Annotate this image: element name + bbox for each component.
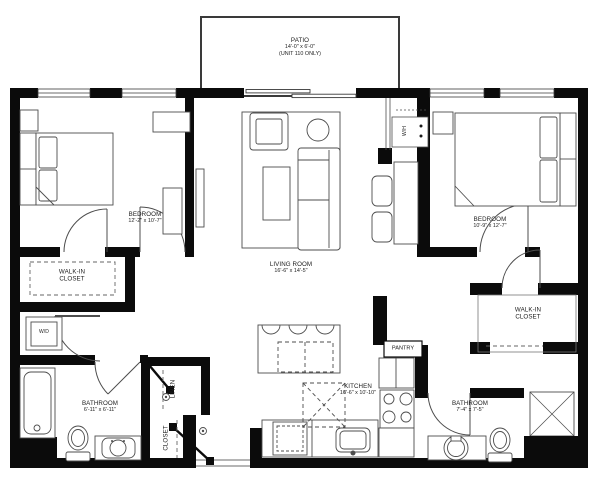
water-heater-unit <box>392 117 428 147</box>
living-room-furniture <box>196 112 340 250</box>
kitchen-island <box>258 325 340 373</box>
bedroom-left-label: BEDROOM 12'-2" x 10'-7" <box>128 211 161 225</box>
kitchen-counter <box>379 428 414 457</box>
pillow <box>540 117 557 158</box>
right-bedroom-furniture <box>433 112 576 206</box>
pillow <box>540 160 557 202</box>
bathtub <box>20 368 55 438</box>
walk-in-closet-right-label: WALK-IN CLOSET <box>505 307 551 322</box>
room-dims: 6'-11" x 6'-11" <box>82 407 118 413</box>
nightstand <box>20 110 38 131</box>
faucet <box>351 451 356 456</box>
dresser <box>153 112 190 132</box>
dining-chair <box>372 212 392 242</box>
closet-label: CLOSET <box>162 425 169 450</box>
patio-label: PATIO 14'-0" x 6'-0" (UNIT 110 ONLY) <box>279 37 321 57</box>
living-room-label: LIVING ROOM 16'-6" x 14'-5" <box>270 261 312 275</box>
kitchen-label: KITCHEN 16'-6" x 10'-10" <box>340 383 376 397</box>
water-heater-label: W/H <box>403 126 409 136</box>
room-name: W/H <box>403 126 409 136</box>
room-note: (UNIT 110 ONLY) <box>279 51 321 57</box>
room-name: PANTRY <box>392 346 414 353</box>
dresser <box>163 188 182 234</box>
room-dims: 16'-6" x 14'-5" <box>270 268 312 274</box>
room-name: BEDROOM <box>473 216 506 223</box>
headboard <box>560 113 576 206</box>
nightstand <box>433 112 453 134</box>
room-name: BEDROOM <box>128 211 161 218</box>
fridge <box>379 358 414 388</box>
room-name: CLOSET <box>162 425 169 450</box>
walk-in-closet-left-label: WALK-IN CLOSET <box>49 269 95 284</box>
washer-dryer-label: W/D <box>39 330 49 336</box>
room-dims: 10'-9" x 12'-7" <box>473 223 506 229</box>
floor-plan-drawing <box>0 0 600 490</box>
room-name: WALK-IN CLOSET <box>505 307 551 322</box>
room-dims: 12'-2" x 10'-7" <box>128 218 161 224</box>
bathroom-right-label: BATHROOM 7'-4" x 7'-5" <box>452 400 488 414</box>
room-name: W/D <box>39 330 49 336</box>
round-table <box>307 119 329 141</box>
right-bathroom-fixtures <box>428 392 578 462</box>
room-name: BATHROOM <box>452 400 488 407</box>
pillow <box>39 170 57 201</box>
room-name: LIVING ROOM <box>270 261 312 268</box>
room-name: WALK-IN CLOSET <box>49 269 95 284</box>
kitchen-sink <box>336 428 370 452</box>
pantry-label: PANTRY <box>392 346 414 353</box>
dining-table <box>394 162 418 244</box>
room-dims: 14'-0" x 6'-0" <box>279 44 321 50</box>
dining-set <box>372 162 418 244</box>
linen-label: LINEN <box>169 380 176 399</box>
room-dims: 16'-6" x 10'-10" <box>340 390 376 396</box>
room-name: KITCHEN <box>340 383 376 390</box>
coffee-table <box>263 167 290 220</box>
left-bedroom-furniture <box>20 110 190 234</box>
room-name: PATIO <box>279 37 321 44</box>
room-dims: 7'-4" x 7'-5" <box>452 407 488 413</box>
sofa <box>298 148 340 250</box>
entry-threshold <box>196 460 250 466</box>
floor-plan: PATIO 14'-0" x 6'-0" (UNIT 110 ONLY) BED… <box>0 0 600 490</box>
room-name: BATHROOM <box>82 400 118 407</box>
dining-chair <box>372 176 392 206</box>
tv <box>196 169 204 227</box>
bathroom-left-label: BATHROOM 6'-11" x 6'-11" <box>82 400 118 414</box>
bedroom-right-label: BEDROOM 10'-9" x 12'-7" <box>473 216 506 230</box>
room-name: LINEN <box>169 380 176 399</box>
dishwasher <box>273 422 307 455</box>
faucet <box>451 436 461 441</box>
pillow <box>39 137 57 168</box>
